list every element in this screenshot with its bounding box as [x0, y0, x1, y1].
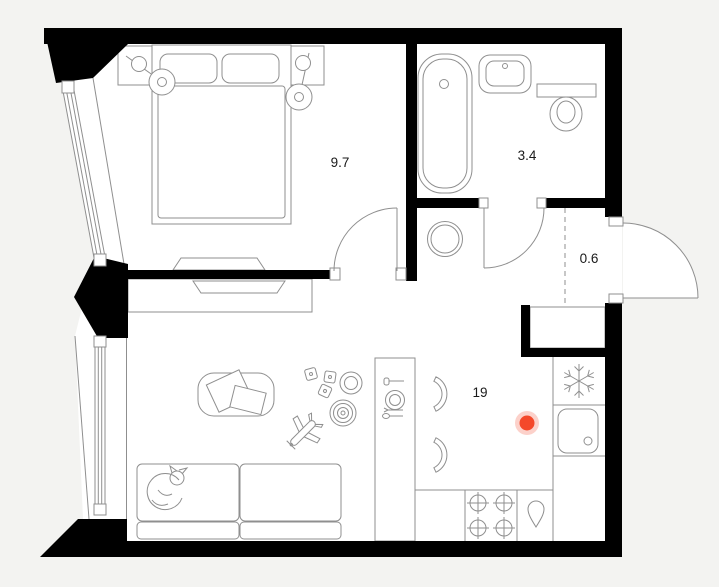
bathtub-icon	[418, 54, 472, 193]
kitchen-sink-icon	[558, 409, 598, 453]
bathroom-area-label: 3.4	[518, 148, 537, 163]
bedroom-area-label: 9.7	[331, 155, 350, 170]
living-room-window-icon	[94, 336, 106, 515]
pillow-icon	[222, 54, 279, 83]
location-marker[interactable]	[515, 411, 539, 435]
hallway-area-label: 0.6	[580, 251, 599, 266]
living-kitchen-area-label: 19	[472, 385, 487, 400]
coffee-table-icon	[198, 370, 274, 416]
wardrobe-icon	[530, 307, 605, 348]
tv-bedroom-icon	[173, 258, 265, 270]
washbasin-icon	[479, 55, 531, 93]
floor-plan-svg: 9.7 3.4 0.6 19	[0, 0, 719, 587]
dining-table-icon	[375, 358, 415, 541]
entrance-door-swing-area	[623, 223, 698, 298]
bedroom-tv-wall	[124, 270, 330, 279]
washing-machine-icon	[428, 222, 463, 257]
tv-living-icon	[193, 281, 285, 293]
bathroom-left-wall	[406, 44, 417, 281]
sofa-icon	[137, 464, 341, 539]
